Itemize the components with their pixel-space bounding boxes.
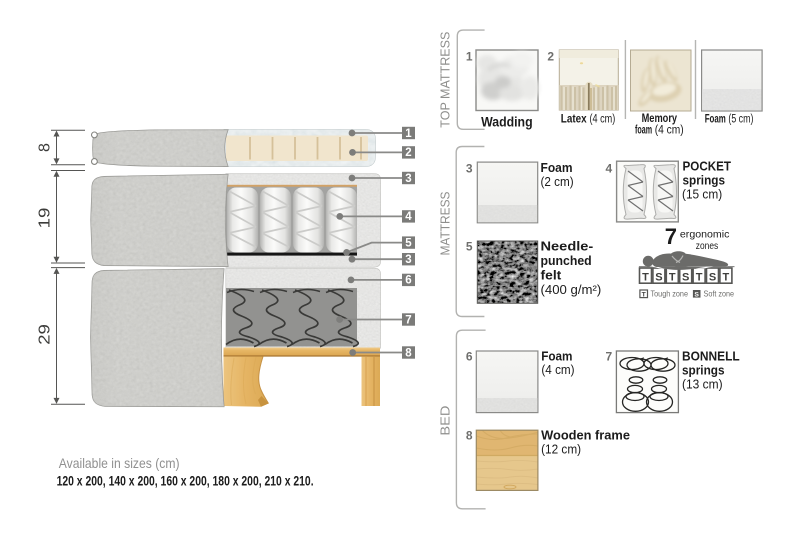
svg-text:MATTRESS: MATTRESS [437,191,452,255]
svg-text:springs: springs [683,173,726,187]
svg-text:T: T [669,272,676,284]
svg-text:7: 7 [665,224,677,249]
svg-text:Latex: Latex [561,114,587,126]
svg-text:(13 cm): (13 cm) [682,378,723,392]
svg-text:7: 7 [606,349,613,363]
svg-text:BONNELL: BONNELL [682,350,740,364]
svg-text:2: 2 [405,147,411,159]
svg-text:Needle-: Needle- [541,240,594,254]
svg-text:8: 8 [466,429,473,443]
svg-text:19: 19 [37,207,54,228]
svg-text:1: 1 [466,49,473,63]
svg-text:2: 2 [547,49,554,63]
svg-text:S: S [709,272,716,284]
svg-text:punched: punched [541,254,592,268]
svg-text:5: 5 [466,240,473,254]
svg-text:3: 3 [405,173,411,185]
svg-text:4: 4 [405,211,412,223]
svg-text:(4 cm): (4 cm) [655,125,684,137]
svg-text:felt: felt [541,269,563,283]
svg-text:springs: springs [682,364,725,378]
svg-text:7: 7 [405,314,411,326]
svg-text:(400 g/m²): (400 g/m²) [541,283,602,297]
svg-text:(4 cm): (4 cm) [590,114,616,126]
svg-text:Foam: Foam [541,349,572,363]
svg-text:(4 cm): (4 cm) [541,363,574,377]
svg-text:4: 4 [606,161,613,175]
svg-text:S: S [682,272,689,284]
svg-text:8: 8 [405,347,412,359]
svg-text:TOP MATTRESS: TOP MATTRESS [437,31,452,127]
svg-text:Foam: Foam [705,114,726,126]
svg-text:Tough zone: Tough zone [651,289,689,299]
svg-text:S: S [655,272,662,284]
svg-text:1: 1 [405,128,412,140]
svg-text:6: 6 [466,349,473,363]
svg-text:Soft zone: Soft zone [704,289,735,299]
svg-text:3: 3 [405,254,411,266]
svg-text:T: T [723,272,730,284]
svg-text:(15 cm): (15 cm) [682,188,722,202]
svg-text:29: 29 [37,324,54,345]
svg-text:BED: BED [437,406,452,436]
svg-text:5: 5 [405,237,412,249]
svg-text:Wadding: Wadding [481,114,532,130]
svg-text:8: 8 [37,143,54,152]
svg-text:ergonomic: ergonomic [680,229,730,241]
svg-text:POCKET: POCKET [683,159,732,173]
svg-text:Wooden frame: Wooden frame [541,429,630,443]
svg-text:zones: zones [696,240,718,252]
svg-text:T: T [642,272,649,284]
svg-text:T: T [696,272,703,284]
svg-text:Memory: Memory [642,113,678,125]
svg-text:(5 cm): (5 cm) [728,114,753,126]
svg-text:(2 cm): (2 cm) [541,175,574,189]
svg-text:Available in sizes (cm): Available in sizes (cm) [59,455,180,471]
svg-text:6: 6 [405,275,411,287]
svg-text:S: S [694,291,699,298]
svg-text:foam: foam [635,125,652,137]
svg-text:120 x 200, 140 x 200, 160 x 20: 120 x 200, 140 x 200, 160 x 200, 180 x 2… [57,474,314,489]
svg-text:Foam: Foam [541,161,573,175]
svg-text:(12 cm): (12 cm) [541,443,581,457]
svg-text:3: 3 [466,161,473,175]
